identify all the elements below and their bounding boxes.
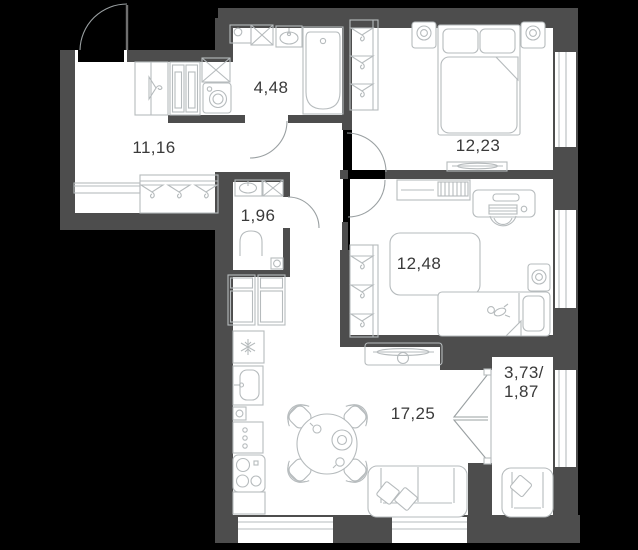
room-label-wc: 1,96 (241, 206, 276, 226)
desk-icon (473, 190, 535, 217)
bedroom-nightstand-left (412, 22, 436, 48)
entrance-door-icon (75, 4, 127, 62)
room-label-kids-room: 12,48 (397, 254, 442, 274)
armchair-icon (502, 468, 553, 517)
double-bed-icon (438, 25, 520, 135)
room-label-hallway: 11,16 (132, 138, 175, 158)
window-living-left (238, 517, 333, 543)
kids-nightstand (528, 264, 550, 291)
window-living-right (392, 517, 467, 543)
balcony-area-line2: 1,87 (504, 382, 539, 401)
room-label-balcony: 3,73/1,87 (504, 363, 544, 401)
balcony-area-line1: 3,73/ (504, 363, 544, 382)
window-balcony (555, 370, 576, 467)
floor-plan: 11,16 4,48 12,23 1,96 12,48 17,25 3,73/1… (0, 0, 638, 550)
window-kids-room (555, 210, 576, 308)
room-label-living-kitchen: 17,25 (391, 404, 436, 424)
floor-plan-drawing (0, 0, 638, 550)
room-label-bedroom: 12,23 (456, 136, 501, 156)
room-label-bathroom: 4,48 (254, 78, 289, 98)
sofa-icon (368, 466, 467, 517)
bedroom-nightstand-right (521, 22, 545, 48)
window-bedroom (555, 52, 576, 147)
